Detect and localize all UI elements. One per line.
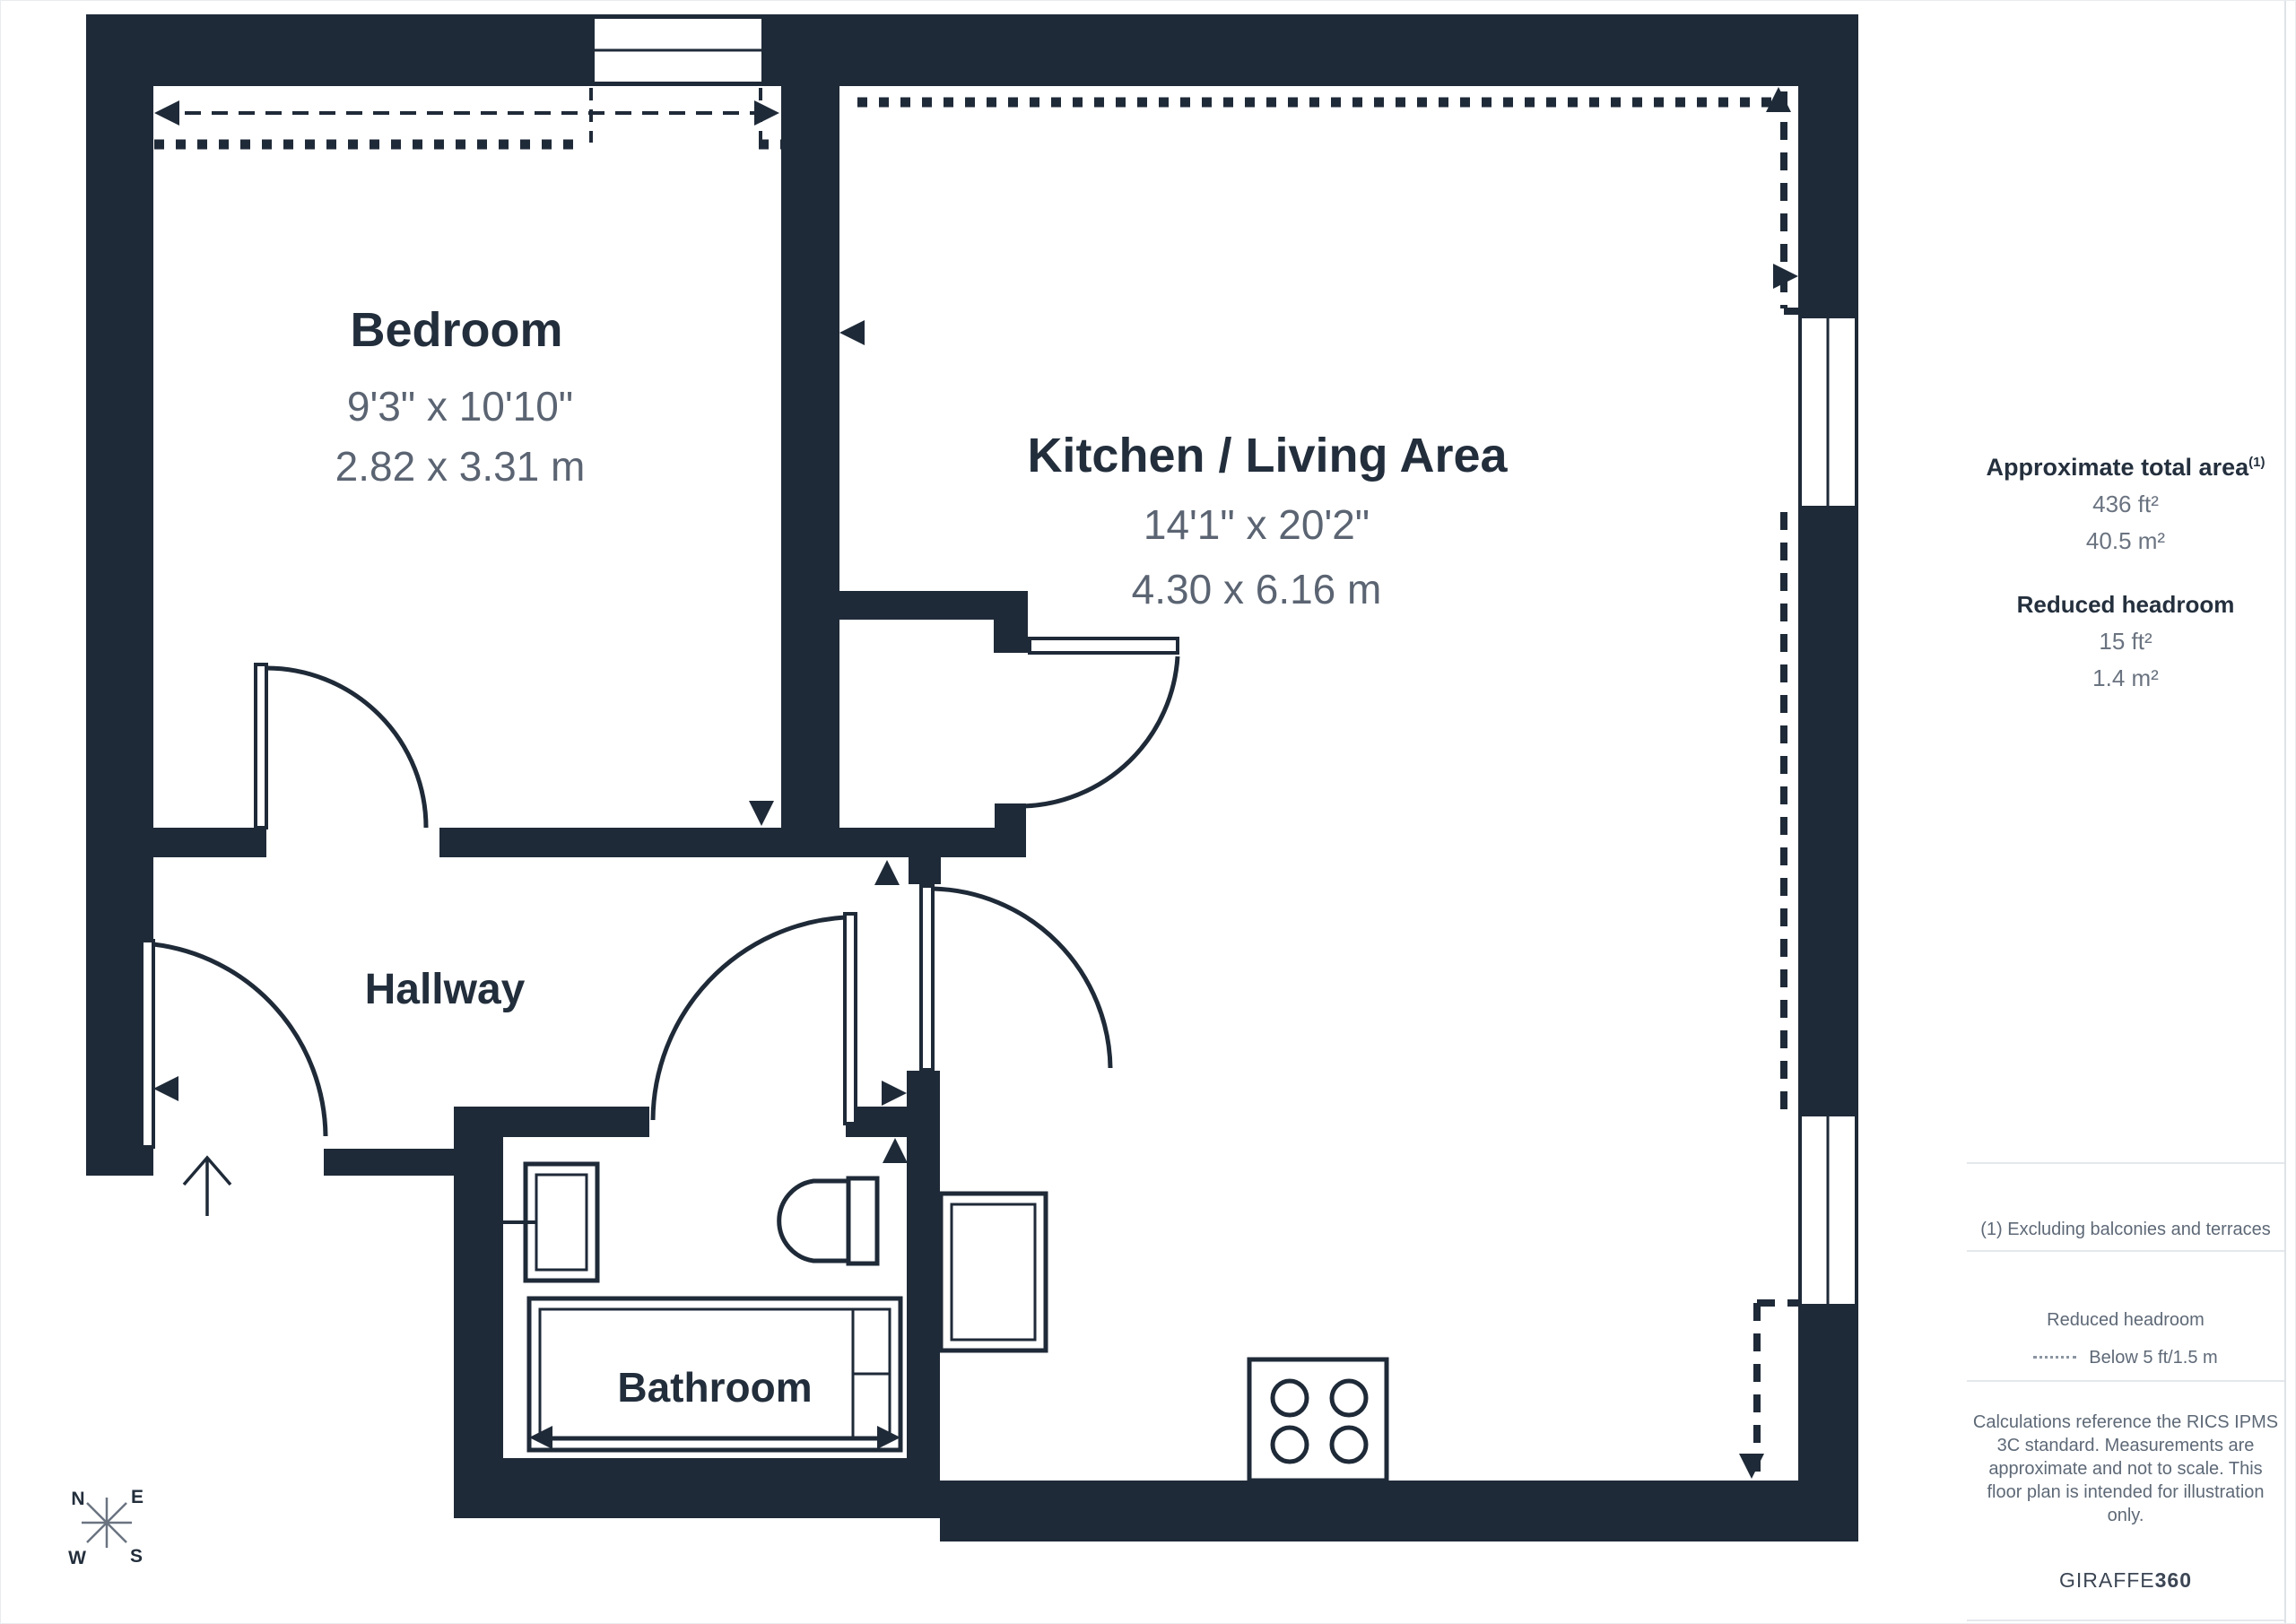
wall-corridor-stub	[909, 855, 941, 884]
wall-bathroom-left	[454, 1107, 503, 1518]
label-bedroom: Bedroom	[350, 303, 562, 357]
door-bathroom	[653, 914, 856, 1124]
wall-hallway-bottom	[324, 1149, 454, 1176]
wall-closet-right-stub	[994, 591, 1028, 653]
wall-bedroom-kitchen-divider	[781, 86, 839, 857]
wall-top	[86, 14, 1858, 86]
door-entrance	[142, 941, 326, 1147]
window-kitchen-lower	[1800, 1115, 1857, 1306]
arrow-up-corridor	[874, 860, 900, 885]
brand-suffix: 360	[2155, 1568, 2192, 1592]
footnote-section: (1) Excluding balconies and terraces	[1967, 1218, 2284, 1241]
label-bedroom-imperial: 9'3" x 10'10"	[347, 383, 573, 430]
disclaimer-line: floor plan is intended for illustration	[1967, 1481, 2284, 1504]
window-bedroom-top	[593, 17, 763, 83]
wall-bedroom-hallway-left	[86, 828, 266, 857]
label-kitchen-metric: 4.30 x 6.16 m	[1132, 566, 1382, 612]
floorplan-canvas: N E W S Bedroom 9'3" x 10'10" 2.82 x 3.3…	[1, 1, 1938, 1624]
sidebar-separator-2	[1967, 1250, 2284, 1252]
wall-closet-doorstop	[995, 803, 1026, 855]
reduced-headroom-heading: Reduced headroom	[1967, 591, 2284, 619]
disclaimer-section: Calculations reference the RICS IPMS 3C …	[1967, 1411, 2284, 1592]
disclaimer-line: 3C standard. Measurements are	[1967, 1434, 2284, 1457]
arrow-left-bedroom-width	[154, 100, 179, 126]
reduced-headroom-imperial: 15 ft²	[1967, 628, 2284, 656]
doors	[142, 638, 1178, 1147]
toilet-icon	[779, 1178, 877, 1264]
wall-bathroom-bottom	[454, 1458, 940, 1518]
arrow-left-kitchen-width	[839, 320, 865, 345]
total-area-footnote-marker: (1)	[2248, 455, 2265, 470]
label-hallway: Hallway	[365, 966, 526, 1013]
kitchen-fixtures	[907, 1194, 1387, 1481]
door-bedroom	[256, 664, 426, 828]
walls	[86, 14, 1858, 1541]
compass-s: S	[130, 1546, 143, 1567]
arrow-right-bedroom-width	[754, 100, 779, 126]
wall-bathroom-top-right	[846, 1107, 940, 1137]
disclaimer-line: Calculations reference the RICS IPMS	[1967, 1411, 2284, 1434]
sink-icon	[503, 1164, 597, 1281]
total-area-section: Approximate total area(1) 436 ft² 40.5 m…	[1967, 454, 2284, 692]
brand-logo: GIRAFFE360	[1967, 1568, 2284, 1592]
legend-section: Reduced headroom Below 5 ft/1.5 m	[1967, 1308, 2284, 1369]
label-kitchen-living: Kitchen / Living Area	[1027, 429, 1508, 482]
sidebar-separator-1	[1967, 1162, 2284, 1164]
disclaimer-line: approximate and not to scale. This	[1967, 1457, 2284, 1481]
window-kitchen-upper	[1800, 317, 1857, 508]
arrow-left-hallway	[153, 1076, 178, 1101]
arrow-up-bathroom	[883, 1138, 908, 1163]
total-area-heading: Approximate total area(1)	[1967, 454, 2284, 482]
wall-bottom-kitchen	[940, 1481, 1858, 1541]
compass-w: W	[68, 1548, 86, 1568]
info-sidebar: Approximate total area(1) 436 ft² 40.5 m…	[1967, 1, 2286, 1624]
total-area-label: Approximate total area	[1987, 454, 2249, 481]
total-area-metric: 40.5 m²	[1967, 527, 2284, 555]
reduced-headroom-dash-sample	[2033, 1356, 2076, 1361]
legend-title: Reduced headroom	[1967, 1308, 2284, 1332]
floorplan-svg: N E W S Bedroom 9'3" x 10'10" 2.82 x 3.3…	[1, 1, 1938, 1624]
sidebar-separator-bottom	[1967, 1620, 2284, 1621]
door-closet	[1023, 638, 1178, 806]
wall-bathroom-top-left	[503, 1107, 649, 1137]
hob-icon	[1249, 1359, 1387, 1481]
wall-bedroom-hallway-right	[439, 828, 1026, 857]
label-bathroom: Bathroom	[617, 1364, 812, 1411]
door-kitchen-entry	[921, 886, 1110, 1070]
dimension-arrows	[153, 87, 1798, 1479]
brand-name: GIRAFFE	[2059, 1568, 2155, 1592]
compass-icon: N E W S	[68, 1487, 143, 1568]
disclaimer-line: only.	[1967, 1504, 2284, 1527]
compass-e: E	[131, 1487, 143, 1507]
label-kitchen-imperial: 14'1" x 20'2"	[1144, 501, 1370, 548]
sidebar-separator-3	[1967, 1380, 2284, 1382]
entrance-arrow-icon	[184, 1158, 230, 1216]
arrow-right-hallway-width	[882, 1081, 907, 1106]
arrow-down-bedroom-height	[749, 801, 774, 826]
dashed-lines	[154, 88, 1798, 1472]
label-bedroom-metric: 2.82 x 3.31 m	[335, 443, 586, 490]
total-area-imperial: 436 ft²	[1967, 491, 2284, 518]
reduced-headroom-metric: 1.4 m²	[1967, 664, 2284, 692]
compass-n: N	[71, 1489, 84, 1509]
legend-item-text: Below 5 ft/1.5 m	[2089, 1348, 2217, 1368]
floorplan-page: N E W S Bedroom 9'3" x 10'10" 2.82 x 3.3…	[0, 0, 2296, 1624]
footnote-text: (1) Excluding balconies and terraces	[1980, 1220, 2271, 1239]
